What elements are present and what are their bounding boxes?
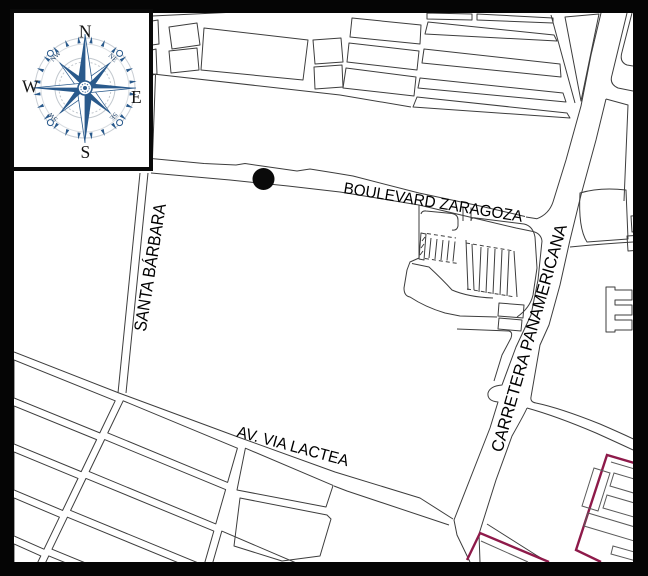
svg-text:E: E [131,87,142,107]
svg-text:S: S [81,142,91,162]
svg-text:W: W [22,77,39,97]
svg-text:N: N [79,22,92,42]
